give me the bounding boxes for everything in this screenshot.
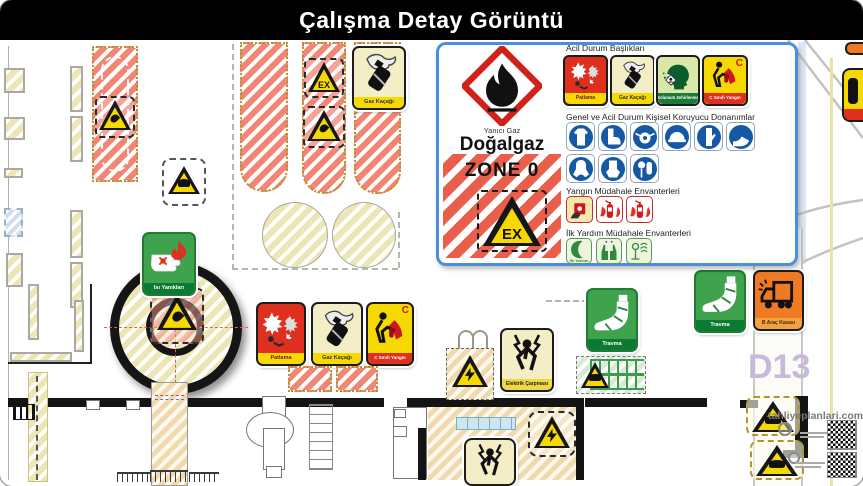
gas-leak-label: Gaz Kaçağı: [354, 97, 404, 108]
machine-part: [266, 466, 282, 478]
class-c-fire-label: C Sınıfı Yangın: [368, 353, 412, 364]
gas-leak-icon: [613, 58, 652, 93]
window: [4, 117, 25, 140]
truck-accident-icon: [756, 273, 801, 318]
fire-class-letter: C: [736, 58, 743, 69]
work-detail-view: D13: [0, 0, 863, 486]
window-strip: [70, 116, 83, 162]
tank-circle: [262, 202, 328, 268]
window-strip: [70, 66, 83, 112]
room-wall: [90, 284, 92, 364]
hazard-zone-small: [288, 366, 332, 392]
protective-clothing-icon: [569, 125, 593, 149]
ppe-tile: [726, 122, 755, 151]
marker-dashed-red: [155, 395, 184, 396]
ex-explosive-atmosphere-triangle: EX: [483, 196, 541, 246]
fire-class-letter: C: [402, 305, 409, 316]
window: [4, 68, 25, 93]
trauma-sign-2: Travma: [694, 270, 746, 333]
heat-burns-label: Isı Yanıkları: [144, 283, 194, 294]
window-strip: [70, 210, 83, 258]
ppe-tile: [566, 122, 595, 151]
heat-burns-sign: Isı Yanıkları: [142, 232, 196, 296]
high-voltage-warning-triangle-icon: [452, 355, 488, 387]
emergency-heading: Acil Durum Başlıkları: [566, 43, 645, 53]
explosion-icon: [259, 305, 303, 353]
ghs-flame-icon: [462, 46, 542, 126]
fine-print-line: [800, 432, 828, 434]
ppe-tile: [662, 122, 691, 151]
class-c-fire-sign: C C Sınıfı Yangın: [366, 302, 414, 366]
fine-print-line: [795, 462, 825, 464]
boundary-dashed: [398, 212, 400, 268]
control-panel-strip: [456, 417, 516, 430]
hot-surface-warning-triangle-icon: [157, 294, 197, 330]
qr-code: [827, 420, 857, 450]
wall: [585, 398, 707, 407]
rack-comb: [150, 470, 188, 482]
road-label: D13: [748, 348, 818, 387]
wall: [407, 398, 584, 407]
first-aid-tiny-label: İlk Yardım: [567, 259, 591, 263]
ppe-tile: [694, 122, 723, 151]
equipment-box: [393, 426, 407, 437]
panel-sign-class-c-fire: C C Sınıfı Yangın: [702, 55, 748, 106]
rack-comb: [117, 472, 150, 482]
inhalation-poisoning-icon: [659, 58, 697, 93]
ppe-tile: [630, 122, 659, 151]
gas-leak-sign: Gaz Kaçağı: [311, 302, 363, 366]
safety-boots-icon: [601, 125, 625, 149]
boundary-dashed: [232, 268, 398, 270]
lane-dashes: [36, 376, 38, 480]
window-blue: [4, 208, 23, 237]
equipment-box: [394, 409, 406, 418]
protective-suit-icon: [569, 157, 593, 181]
boundary-dashed: [546, 300, 588, 302]
fire-extinguisher-cabinet-icon: [626, 196, 653, 223]
vehicle-accident-label: B Araç Kazası: [755, 318, 802, 329]
electric-shock-label: Elektrik Çarpması: [502, 379, 552, 390]
breathing-apparatus-icon: [633, 157, 657, 181]
protective-hands-icon: [596, 238, 622, 264]
hand-flame-icon: [145, 235, 193, 283]
wall-slab: [10, 352, 72, 362]
door-icon: [13, 404, 35, 420]
fine-print-line: [800, 436, 824, 438]
flammable-warning-triangle-icon: [99, 100, 131, 130]
wall: [576, 407, 584, 480]
door-mark: [86, 400, 100, 410]
electric-shock-sign: Elektrik Çarpması: [500, 328, 554, 392]
electric-shock-pictogram: [464, 438, 516, 486]
panel-sign-gas-leak: Gaz Kaçağı: [610, 55, 655, 106]
ppe-tile: [630, 154, 659, 183]
window: [6, 253, 23, 287]
fire-extinguisher-icon: [596, 196, 623, 223]
wall: [418, 428, 426, 480]
room-wall: [8, 362, 92, 364]
chemical-gloves-icon: [601, 157, 625, 181]
wall-slab: [28, 284, 39, 340]
bandaged-foot-icon: [697, 273, 743, 320]
ppe-tile: [598, 122, 627, 151]
trauma-label: Travma: [588, 339, 636, 350]
protective-gloves-icon: [697, 125, 721, 149]
gas-leak-icon: [355, 49, 403, 97]
panel-sign-label: Solunum Zehirlenme: [658, 93, 698, 104]
page-title: Çalışma Detay Görüntü: [0, 0, 863, 40]
gas-leak-icon: [314, 305, 360, 353]
ladder: [309, 404, 333, 470]
bandaged-foot-icon: [589, 291, 635, 339]
fire-heading: Yangın Müdahale Envanterleri: [566, 186, 680, 196]
ppe-tile: [598, 154, 627, 183]
high-voltage-warning-triangle-icon: [534, 416, 570, 448]
fine-print-line: [795, 466, 821, 468]
hazard-strip-capsule: [240, 42, 288, 192]
ppe-heading: Genel ve Acil Durum Kişisel Koruyucu Don…: [566, 112, 755, 122]
trauma-sign-1: Travma: [586, 288, 638, 352]
panel-sign-label: Patlama: [565, 93, 606, 104]
trauma-label: Travma: [696, 320, 744, 331]
vehicle-accident-sign: B Araç Kazası: [753, 270, 804, 331]
panel-sign-inhalation: Solunum Zehirlenme: [656, 55, 700, 106]
tank-circle: [332, 202, 396, 268]
explosion-icon: [566, 58, 605, 93]
ppe-tile: [566, 154, 595, 183]
substance-name: Doğalgaz: [450, 134, 554, 156]
chimney-arc: [472, 330, 488, 348]
fire-alarm-call-point-icon: [566, 196, 593, 223]
emergency-eyewash-icon: [626, 238, 652, 264]
qr-code: [827, 452, 857, 478]
marked-lane: [28, 372, 48, 482]
first-aid-crescent-icon: İlk Yardım: [566, 238, 592, 264]
edge-icon-orange: [845, 42, 863, 55]
safety-helmet-icon: [665, 125, 689, 149]
respirator-mask-icon: [633, 125, 657, 149]
safety-shoes-icon: [729, 125, 753, 149]
slip-warning-triangle-icon: [168, 166, 200, 194]
machine-part: [263, 428, 285, 470]
marker-dashed-blue: [155, 399, 184, 400]
ex-warning-triangle-icon: EX: [308, 62, 340, 92]
electric-shock-icon: [503, 331, 551, 379]
explosion-label: Patlama: [258, 353, 304, 364]
flammable-warning-triangle-icon: [307, 110, 341, 141]
gas-leak-label: Gaz Kaçağı: [313, 353, 361, 364]
pinch-warning-triangle-icon: [581, 362, 609, 388]
rack-comb: [189, 472, 219, 482]
explosion-sign: Patlama: [256, 302, 306, 366]
door-mark: [126, 400, 140, 410]
panel-sign-label: Gaz Kaçağı: [612, 93, 653, 104]
window: [4, 168, 23, 178]
wall-slab: [74, 300, 84, 352]
hazard-zone-small: [336, 366, 378, 392]
edge-icon-class-fire: [842, 68, 863, 122]
panel-sign-label: C Sınıfı Yangın: [704, 93, 746, 104]
stamp-seal: [778, 422, 792, 436]
panel-sign-explosion: Patlama: [563, 55, 608, 106]
zone0-label: ZONE 0: [443, 160, 561, 182]
gas-leak-sign-top: Gaz Kaçağı: [352, 46, 406, 110]
first-aid-heading: İlk Yardım Müdahale Envanterleri: [566, 228, 691, 238]
electric-shock-icon: [467, 441, 513, 483]
boundary-dashed: [232, 44, 234, 270]
